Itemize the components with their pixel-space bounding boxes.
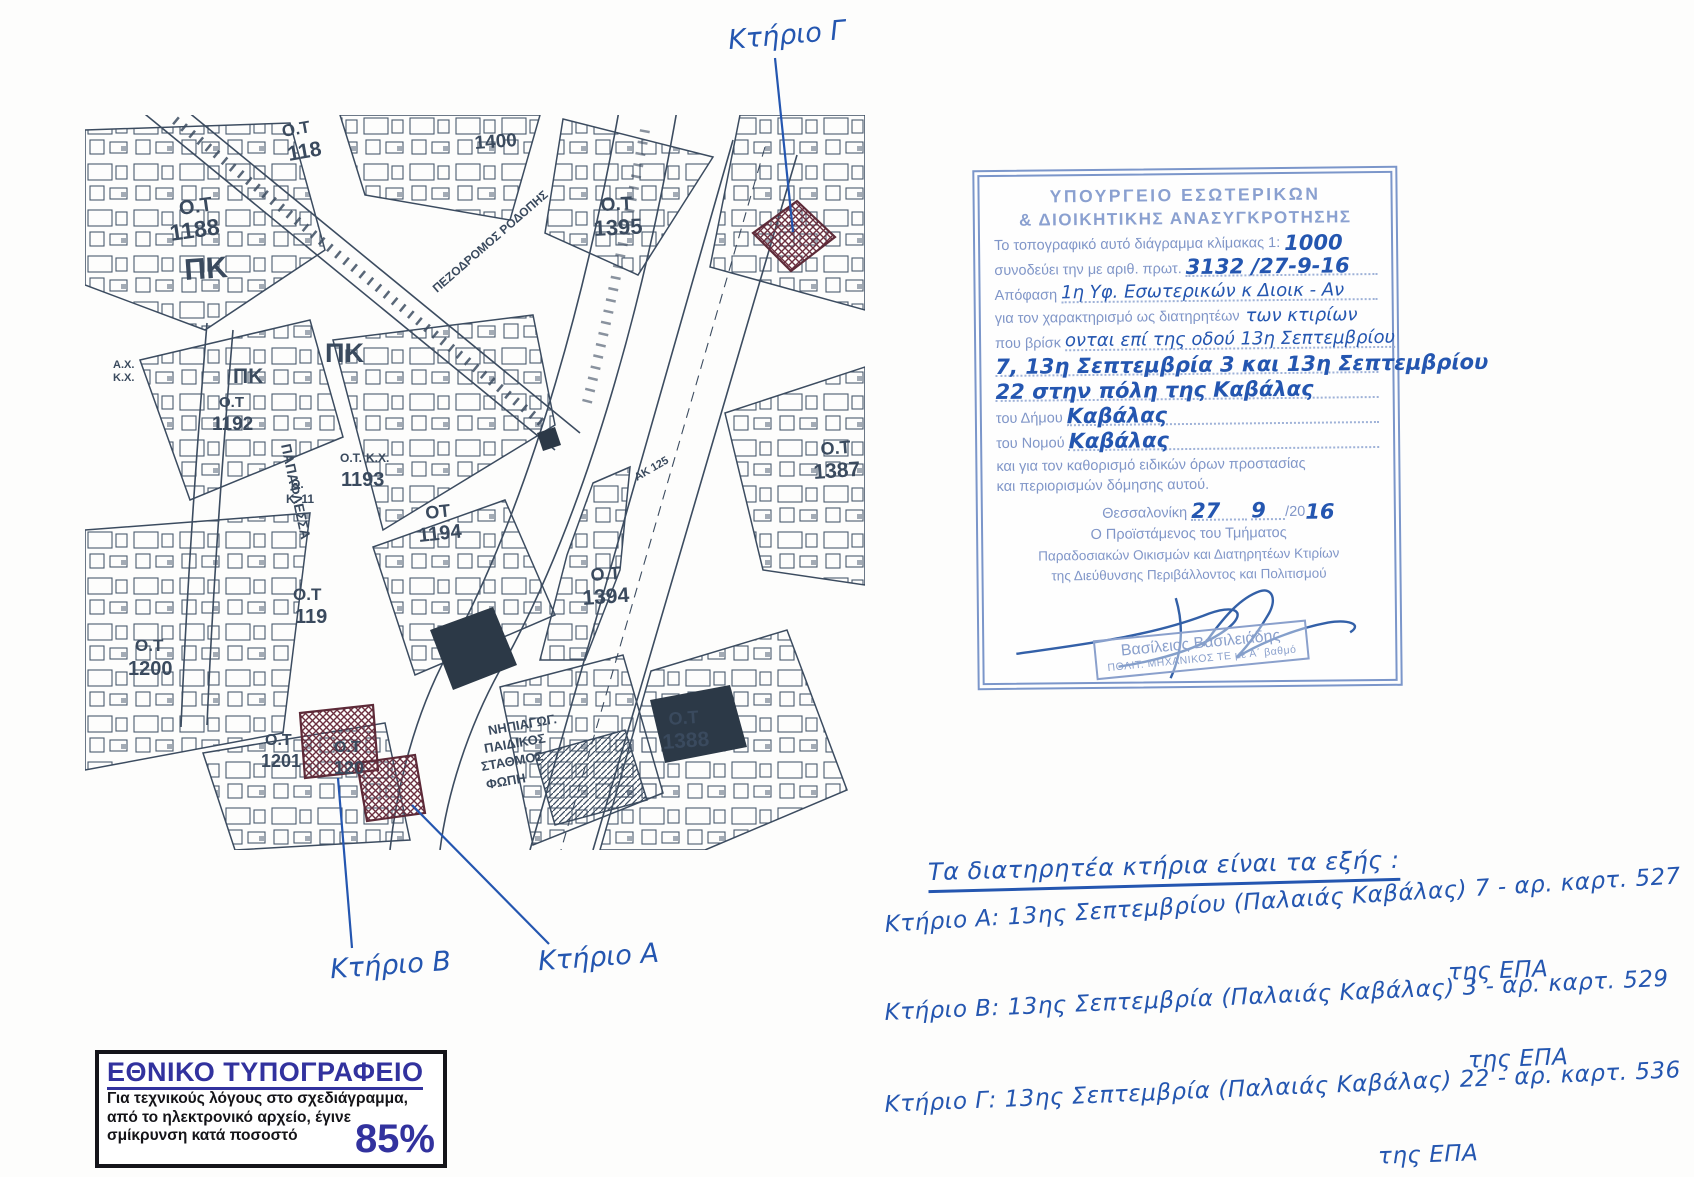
map-label: Κ.Χ. [113, 372, 134, 384]
map-label: ΠΚ [183, 251, 229, 287]
stamp-location-prefix: που βρίσκ [995, 335, 1061, 352]
stamp-header-2: & ΔΙΟΙΚΗΤΙΚΗΣ ΑΝΑΣΥΓΚΡΟΤΗΣΗΣ [994, 207, 1377, 231]
map-label: Ο.Τ [265, 732, 292, 749]
map-label: 1387 [813, 458, 861, 484]
note-building-g: Κτήριο Γ: 13ης Σεπτεμβρία (Παλαιάς Καβάλ… [884, 1057, 1681, 1118]
stamp-signatory-title-1: Ο Προϊστάμενος του Τμήματος [997, 524, 1380, 544]
map-label: 1192 [212, 414, 253, 435]
stamp-signatory-title-2: Παραδοσιακών Οικισμών και Διατηρητέων Κτ… [997, 545, 1380, 564]
map-label: Ο.Τ [280, 117, 312, 141]
stamp-decision-value: 1η Υφ. Εσωτερικών κ Διοικ - Αν [1061, 282, 1344, 301]
map-label: 1194 [417, 520, 463, 547]
stamp-header-1: ΥΠΟΥΡΓΕΙΟ ΕΣΩΤΕΡΙΚΩΝ [993, 183, 1376, 208]
map-label: 1395 [593, 213, 643, 241]
map-label: 119 [295, 606, 327, 628]
map-label: Ο.Τ. [340, 451, 362, 465]
stamp-year-prefix: /20 [1285, 504, 1305, 520]
map-label: ΟΤ [424, 500, 451, 523]
printing-office-title: ΕΘΝΙΚΟ ΤΥΠΟΓΡΑΦΕΙΟ [107, 1058, 423, 1090]
map-label-building-gamma: Κτήριο Γ [727, 15, 847, 56]
map-label: Ο.Τ [219, 394, 244, 411]
map-label: 120 [334, 758, 364, 778]
map-label: Ο.Τ [293, 585, 322, 604]
stamp-prefecture-label: του Νομού [996, 435, 1065, 452]
map-label: Ο.Τ [334, 739, 361, 756]
reduction-percentage: 85% [355, 1117, 435, 1162]
map-label: 1193 [341, 469, 384, 491]
map-label: Ο.Τ [600, 193, 633, 216]
map-label: Ο.Τ [820, 437, 851, 459]
ministry-stamp: ΥΠΟΥΡΓΕΙΟ ΕΣΩΤΕΡΙΚΩΝ & ΔΙΟΙΚΗΤΙΚΗΣ ΑΝΑΣΥ… [972, 166, 1402, 690]
stamp-date-year: 16 [1305, 503, 1334, 519]
building-alpha [357, 755, 425, 821]
note-building-g-cont: της ΕΠΑ [1378, 1140, 1479, 1169]
note-building-b: Κτήριο Β: 13ης Σεπτεμβρία (Παλαιάς Καβάλ… [884, 966, 1669, 1026]
map-label: 1400 [474, 130, 518, 154]
stamp-city-hw: 22 στην πόλη της Καβάλας [996, 381, 1314, 400]
stamp-date-day: 27 [1191, 503, 1220, 519]
stamp-municipality-label: του Δήμου [996, 410, 1063, 427]
printing-office-line-1: Για τεχνικούς λόγους στο σχεδιάγραμμα, [107, 1090, 435, 1108]
cadastral-map-drawing: Ο.Τ1188ΠΚΟ.Τ1181400Ο.Τ1395ΠΚΟ.Τ1192ΠΚΑ.Χ… [85, 115, 865, 850]
cadastral-map: Ο.Τ1188ΠΚΟ.Τ1181400Ο.Τ1395ΠΚΟ.Τ1192ΠΚΑ.Χ… [85, 115, 865, 850]
map-label: Ο.Τ [590, 563, 621, 585]
map-label: 1200 [128, 658, 173, 680]
stamp-scale-value: 1000 [1284, 234, 1343, 251]
map-label-building-beta: Κτήριο Β [329, 946, 452, 985]
stamp-scale-text: Το τοπογραφικό αυτό διάγραμμα κλίμακας 1… [994, 235, 1280, 254]
map-label: Κ.Χ. [366, 451, 389, 465]
stamp-signatory-title-3: της Διεύθυνσης Περιβάλλοντος και Πολιτισ… [997, 565, 1380, 584]
stamp-restrictions-text: και περιορισμών δόμησης αυτού. [997, 477, 1210, 495]
map-label-building-alpha: Κτήριο Α [537, 938, 660, 977]
map-label: Ο.Τ [668, 707, 699, 729]
stamp-municipality-value: Καβάλας [1067, 407, 1167, 424]
stamp-decision-label: Απόφαση [995, 287, 1058, 304]
signature-area: Βασίλειος Βασιλειάδης ΠΟΛΙΤ. ΜΗΧΑΝΙΚΟΣ Τ… [998, 584, 1382, 684]
stamp-protocol-text: συνοδεύει την με αριθ. πρωτ. [994, 261, 1182, 279]
scanned-topographic-document: { "colors":{"map_ink":"#3a4a5e","hand_bl… [0, 0, 1694, 1177]
map-label: Α.Χ. [113, 359, 134, 371]
map-label: ΑΚ 125 [633, 455, 671, 484]
map-label: 1394 [582, 584, 631, 610]
stamp-characterization-hw: των κτιρίων [1246, 307, 1358, 324]
stamp-location-hw: ονται επί της οδού 13η Σεπτεμβρίου [1065, 330, 1395, 349]
stamp-protocol-value: 3132 /27-9-16 [1186, 257, 1350, 275]
stamp-sign-city: Θεσσαλονίκη [1102, 505, 1187, 522]
stamp-addresses-hw: 7, 13η Σεπτεμβρία 3 και 13η Σεπτεμβρίου [995, 354, 1488, 375]
map-label: Ο.Τ [135, 636, 164, 655]
stamp-prefecture-value: Καβάλας [1068, 432, 1168, 449]
map-label: ΠΚ [325, 338, 364, 368]
stamp-protection-text: και για τον καθορισμό ειδικών όρων προστ… [996, 456, 1305, 475]
map-label: 1201 [261, 751, 301, 771]
map-label: ΠΚ [233, 365, 263, 388]
map-label: 1388 [662, 728, 711, 754]
map-label: 118 [286, 137, 324, 166]
printing-office-box: ΕΘΝΙΚΟ ΤΥΠΟΓΡΑΦΕΙΟ Για τεχνικούς λόγους … [95, 1050, 447, 1168]
stamp-date-month: 9 [1251, 502, 1266, 518]
stamp-characterization-text: για τον χαρακτηρισμό ως διατηρητέων [995, 308, 1240, 327]
